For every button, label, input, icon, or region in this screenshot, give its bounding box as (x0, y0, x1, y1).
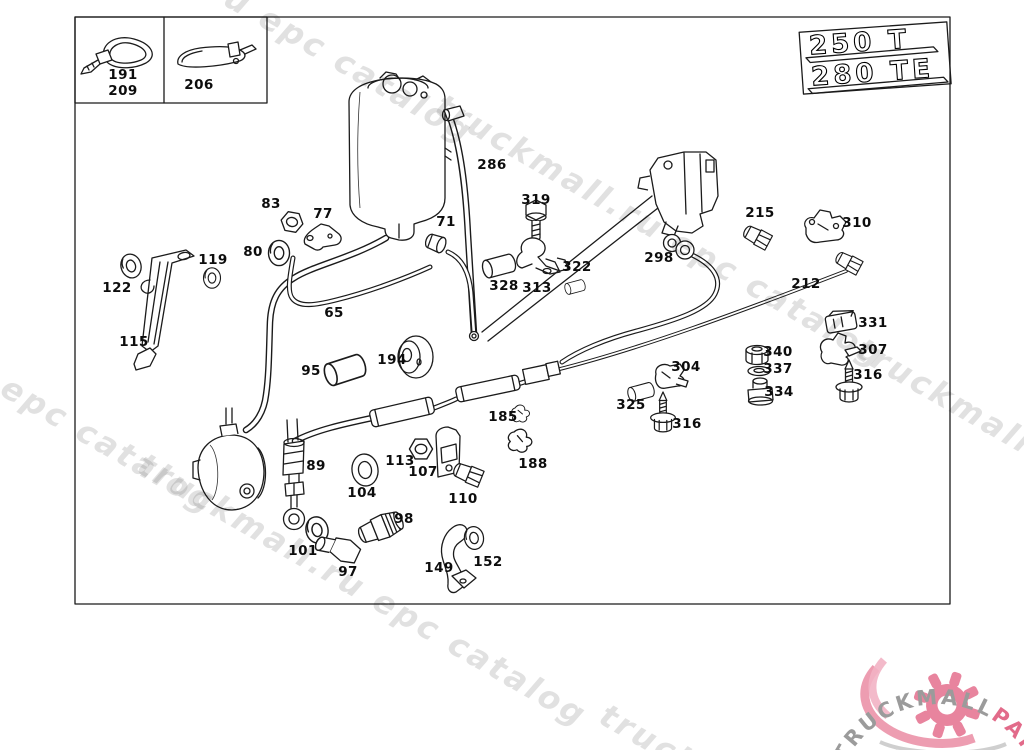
brand-logo: TRUCKMALLPARTS (0, 0, 1024, 750)
logo-text-parts: PARTS (0, 0, 1024, 750)
svg-text:TRUCKMALLPARTS: TRUCKMALLPARTS (0, 0, 1024, 750)
catalog-page: 250 T 280 TE (0, 0, 1024, 750)
